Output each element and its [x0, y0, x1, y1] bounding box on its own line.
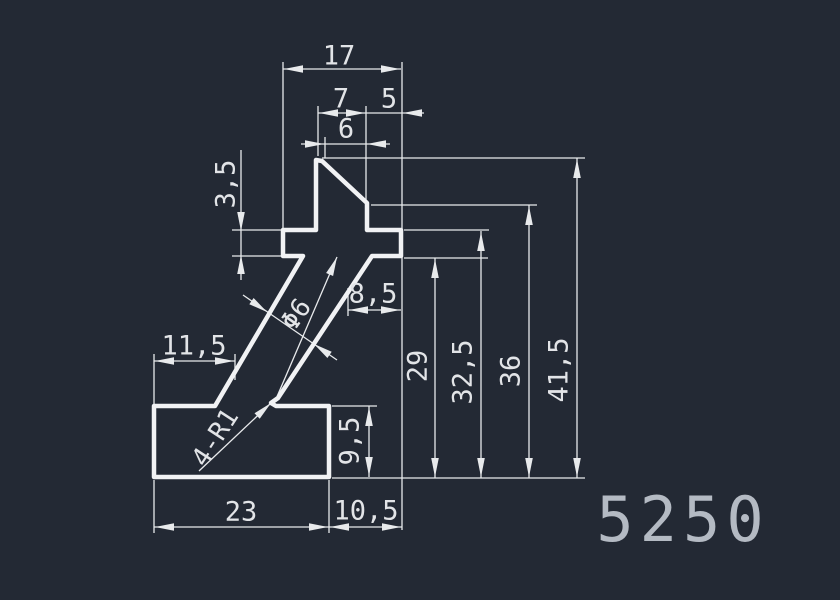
- dim-8-5-label: 8,5: [349, 279, 398, 310]
- dim-36-label: 36: [496, 355, 527, 388]
- dim-10-5-label: 10,5: [333, 496, 398, 527]
- dim-7-label: 7: [333, 84, 349, 115]
- cad-viewport: 177563,58,511,59,52932,53641,52310,5Φ64-…: [0, 0, 840, 600]
- profile-number: 5250: [596, 483, 769, 556]
- dim-11-5-label: 11,5: [161, 331, 226, 362]
- dim-3-5-label: 3,5: [211, 160, 242, 209]
- dim-41-5-label: 41,5: [544, 337, 575, 402]
- dim-5-label: 5: [381, 84, 397, 115]
- dim-23-label: 23: [225, 497, 258, 528]
- cad-drawing-canvas: 177563,58,511,59,52932,53641,52310,5Φ64-…: [0, 0, 840, 600]
- dim-6-label: 6: [338, 114, 354, 145]
- dim-32-5-label: 32,5: [448, 339, 479, 404]
- dim-29-label: 29: [403, 350, 434, 383]
- dim-9-5-label: 9,5: [335, 417, 366, 466]
- dim-17-label: 17: [323, 41, 356, 72]
